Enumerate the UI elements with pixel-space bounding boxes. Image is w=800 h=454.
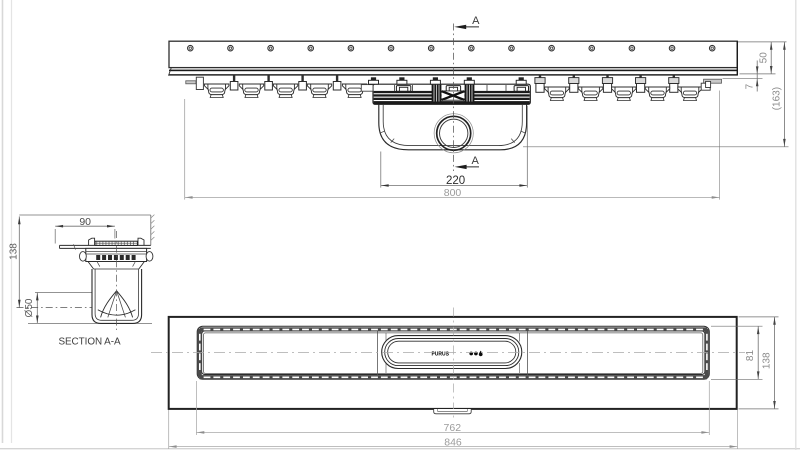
svg-text:A: A <box>472 15 480 27</box>
svg-text:800: 800 <box>444 187 462 199</box>
svg-text:A: A <box>472 155 480 167</box>
svg-text:50: 50 <box>758 52 769 64</box>
svg-text:846: 846 <box>444 437 462 449</box>
svg-text:138: 138 <box>9 243 20 260</box>
svg-text:SECTION A-A: SECTION A-A <box>58 336 120 347</box>
svg-text:7: 7 <box>745 83 756 89</box>
svg-text:81: 81 <box>745 350 756 362</box>
svg-text:(163): (163) <box>772 87 783 110</box>
svg-text:220: 220 <box>446 175 465 187</box>
svg-text:138: 138 <box>761 352 772 369</box>
svg-text:90: 90 <box>79 216 91 228</box>
svg-text:762: 762 <box>444 422 462 434</box>
